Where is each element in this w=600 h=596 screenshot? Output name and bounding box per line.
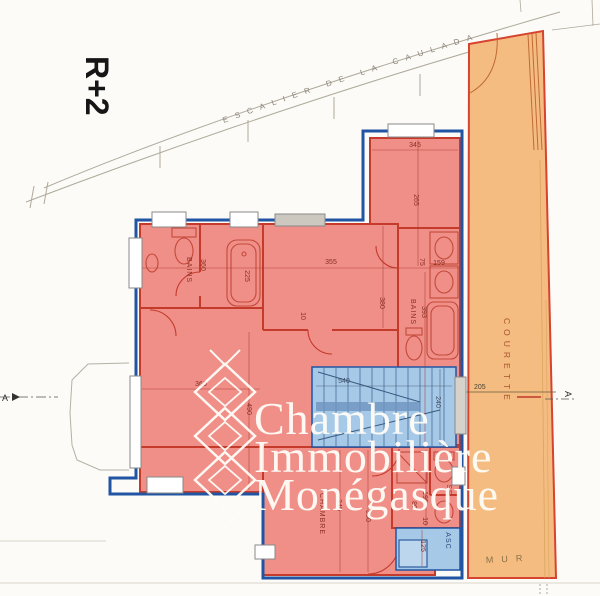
dim-courette-width: 205	[474, 384, 486, 391]
floorplan-svg: ESCALIER DE LA CAULADA COURETTE 205 MUR	[0, 0, 600, 596]
dim: 345	[409, 142, 421, 149]
courette-label: COURETTE	[502, 318, 512, 405]
street-tick	[30, 186, 34, 208]
corner-line	[520, 0, 521, 12]
floor-label: R+2	[79, 56, 115, 116]
dim: 393	[420, 306, 427, 318]
section-arrow-left	[12, 393, 20, 401]
dim: 380	[378, 297, 385, 309]
dim: 225	[243, 270, 250, 282]
section-a-right: A	[563, 391, 573, 397]
window	[255, 545, 275, 559]
dim: 240	[434, 396, 441, 408]
street-tick	[44, 182, 48, 204]
window	[130, 376, 141, 468]
street-name: ESCALIER DE LA CAULADA	[221, 31, 480, 125]
dim: 540	[338, 378, 350, 385]
asc-label: ASC	[444, 532, 451, 549]
window	[230, 212, 258, 227]
dim: 75	[418, 258, 425, 266]
dim: 490	[245, 403, 252, 415]
window	[152, 212, 186, 227]
window	[147, 477, 183, 493]
window	[388, 124, 434, 137]
corner-line	[592, 0, 593, 26]
window	[275, 214, 325, 226]
bains-right-label: BAINS	[409, 299, 416, 325]
dim: 265	[412, 194, 419, 206]
bains-left-label: BAINS	[185, 257, 192, 283]
dim: 355	[325, 259, 337, 266]
section-a-left: A	[2, 393, 8, 403]
bay-window-outline	[70, 363, 129, 470]
window	[455, 377, 466, 434]
dim: 10	[299, 312, 306, 320]
watermark-line3: Monégasque	[254, 469, 499, 520]
dim: 360	[199, 259, 206, 271]
window	[129, 238, 142, 288]
floorplan-scan: ESCALIER DE LA CAULADA COURETTE 205 MUR	[0, 0, 600, 596]
dim: 159	[433, 260, 445, 267]
dim: 125	[419, 540, 426, 552]
street-name-text: ESCALIER DE LA CAULADA	[221, 31, 480, 125]
